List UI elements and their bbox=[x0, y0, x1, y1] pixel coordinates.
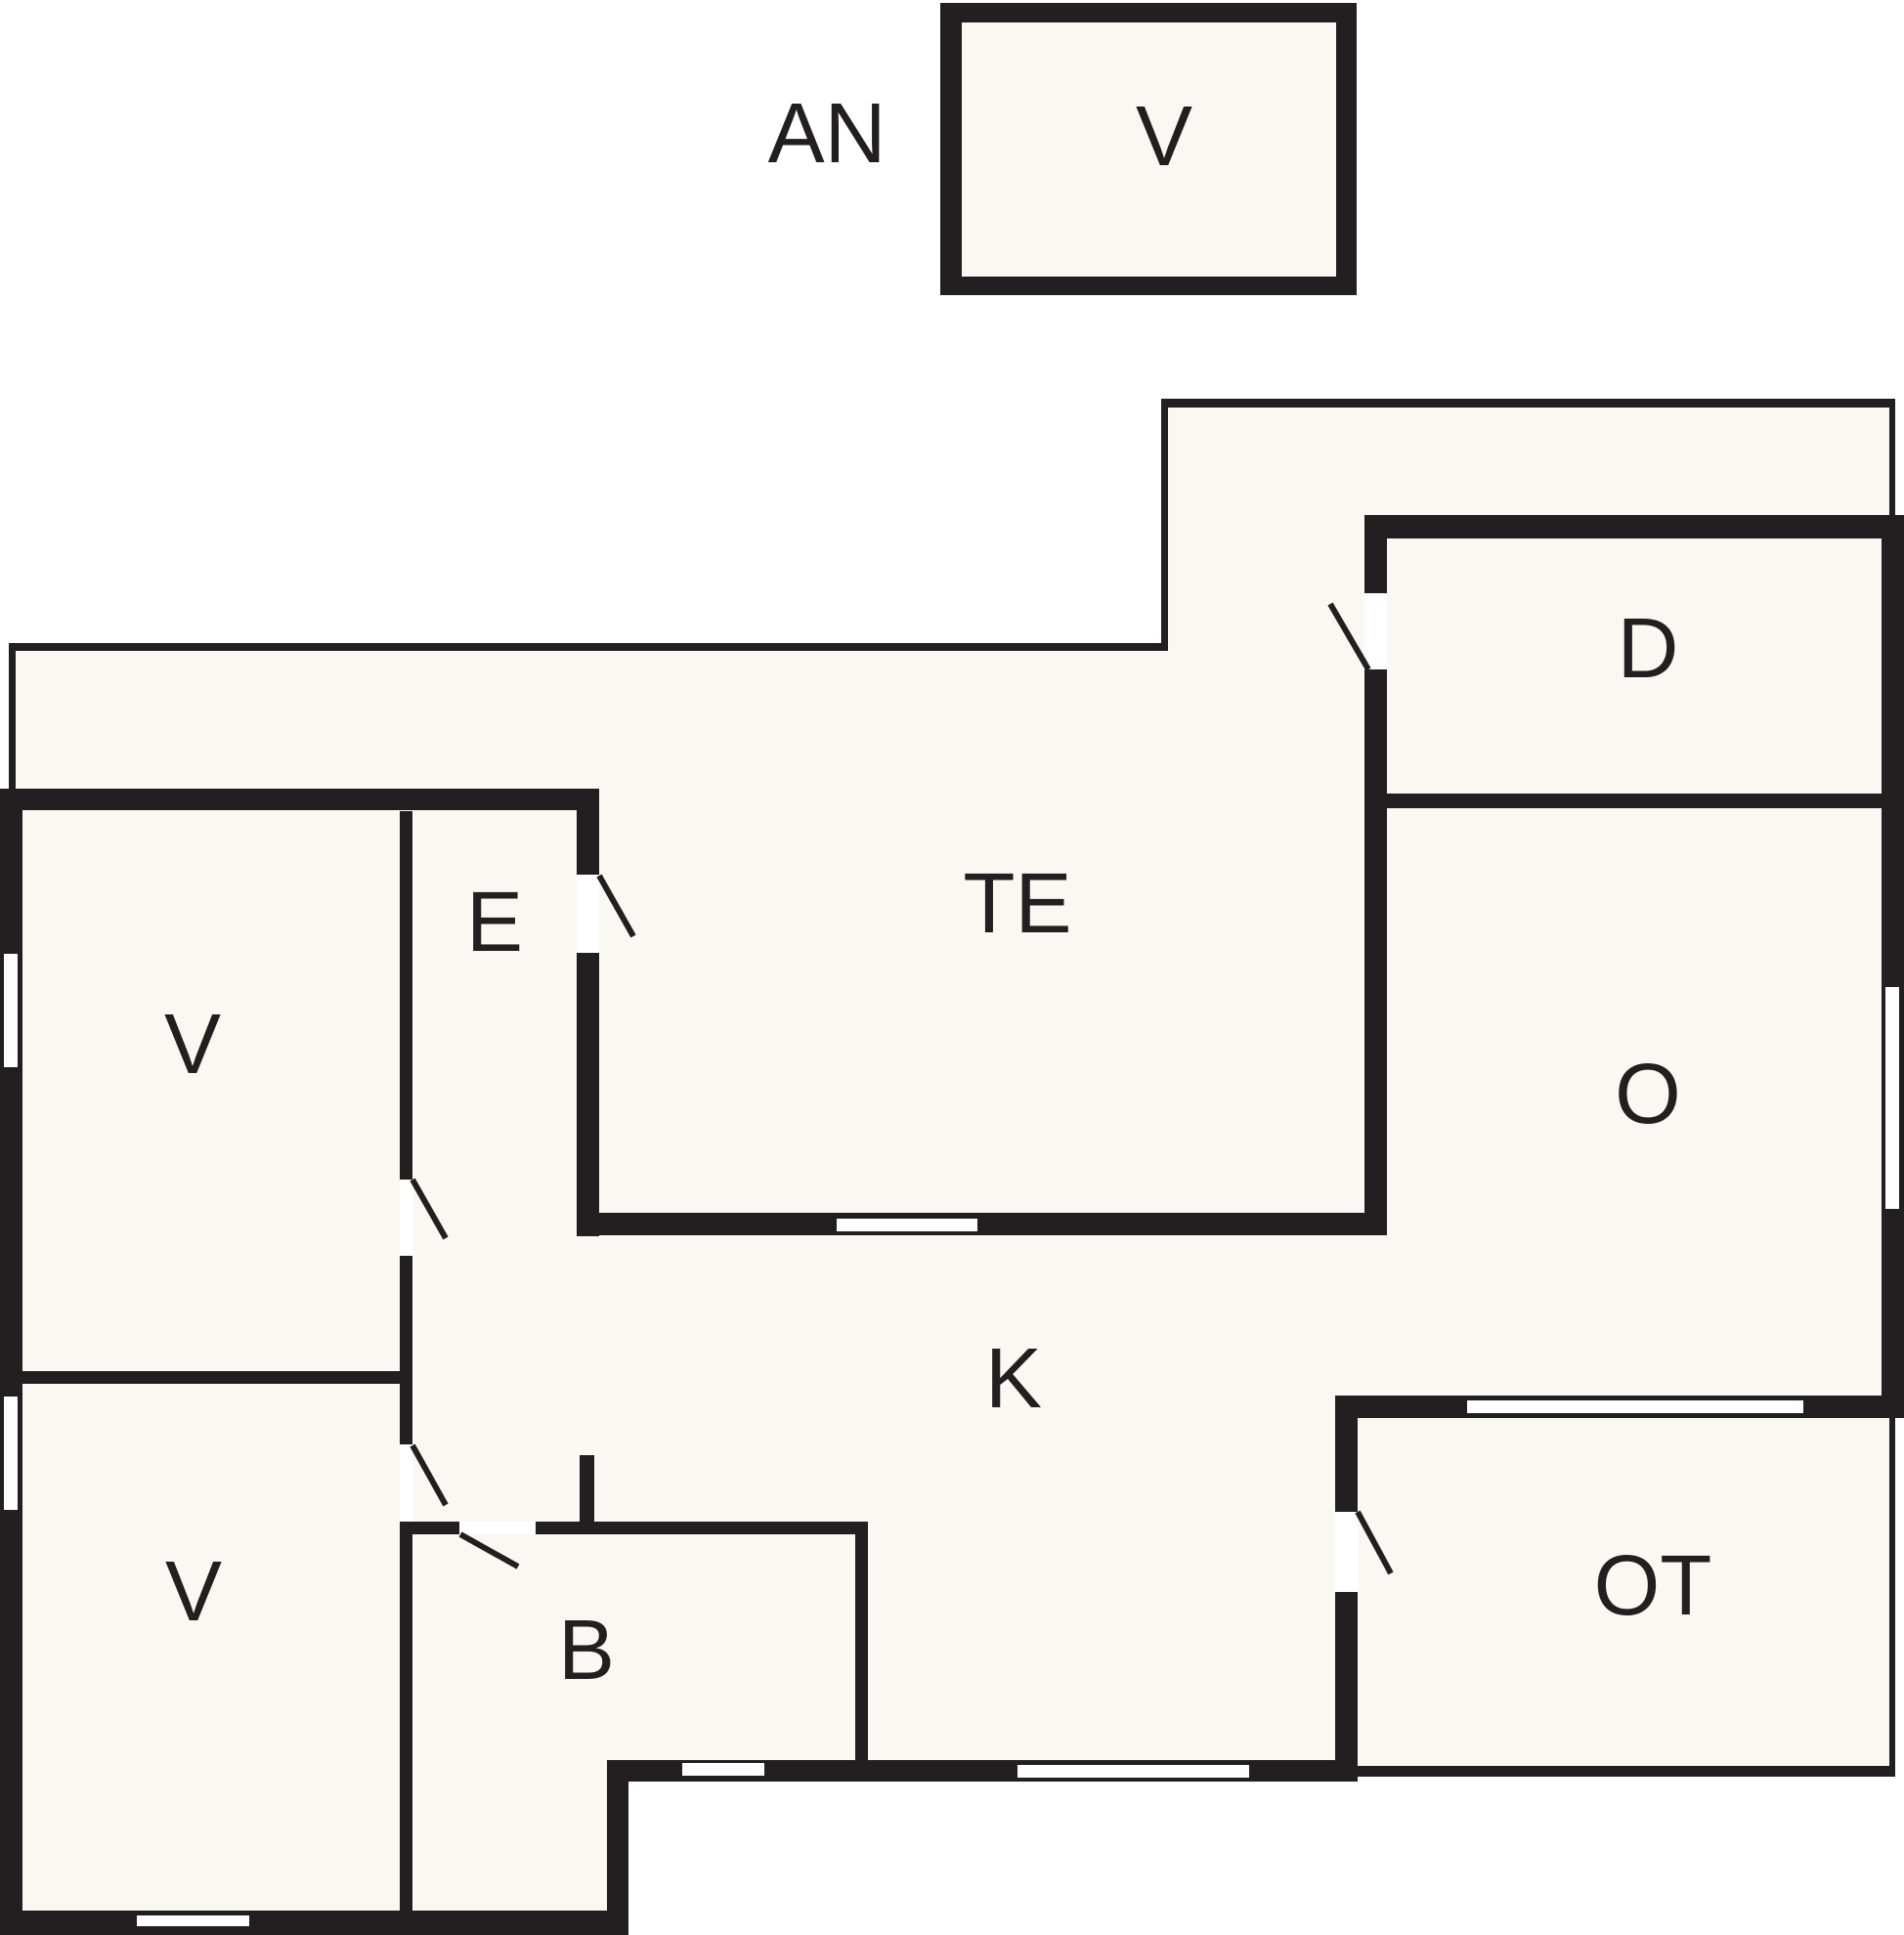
svg-text:V: V bbox=[164, 997, 221, 1092]
svg-text:D: D bbox=[1618, 601, 1679, 696]
svg-text:E: E bbox=[466, 875, 523, 969]
svg-text:OT: OT bbox=[1594, 1538, 1712, 1633]
svg-text:O: O bbox=[1615, 1047, 1681, 1141]
svg-text:AN: AN bbox=[768, 86, 887, 181]
svg-text:TE: TE bbox=[963, 856, 1071, 951]
svg-text:V: V bbox=[1136, 89, 1192, 184]
svg-text:K: K bbox=[985, 1331, 1042, 1426]
svg-text:B: B bbox=[558, 1603, 615, 1698]
svg-text:V: V bbox=[165, 1544, 222, 1639]
